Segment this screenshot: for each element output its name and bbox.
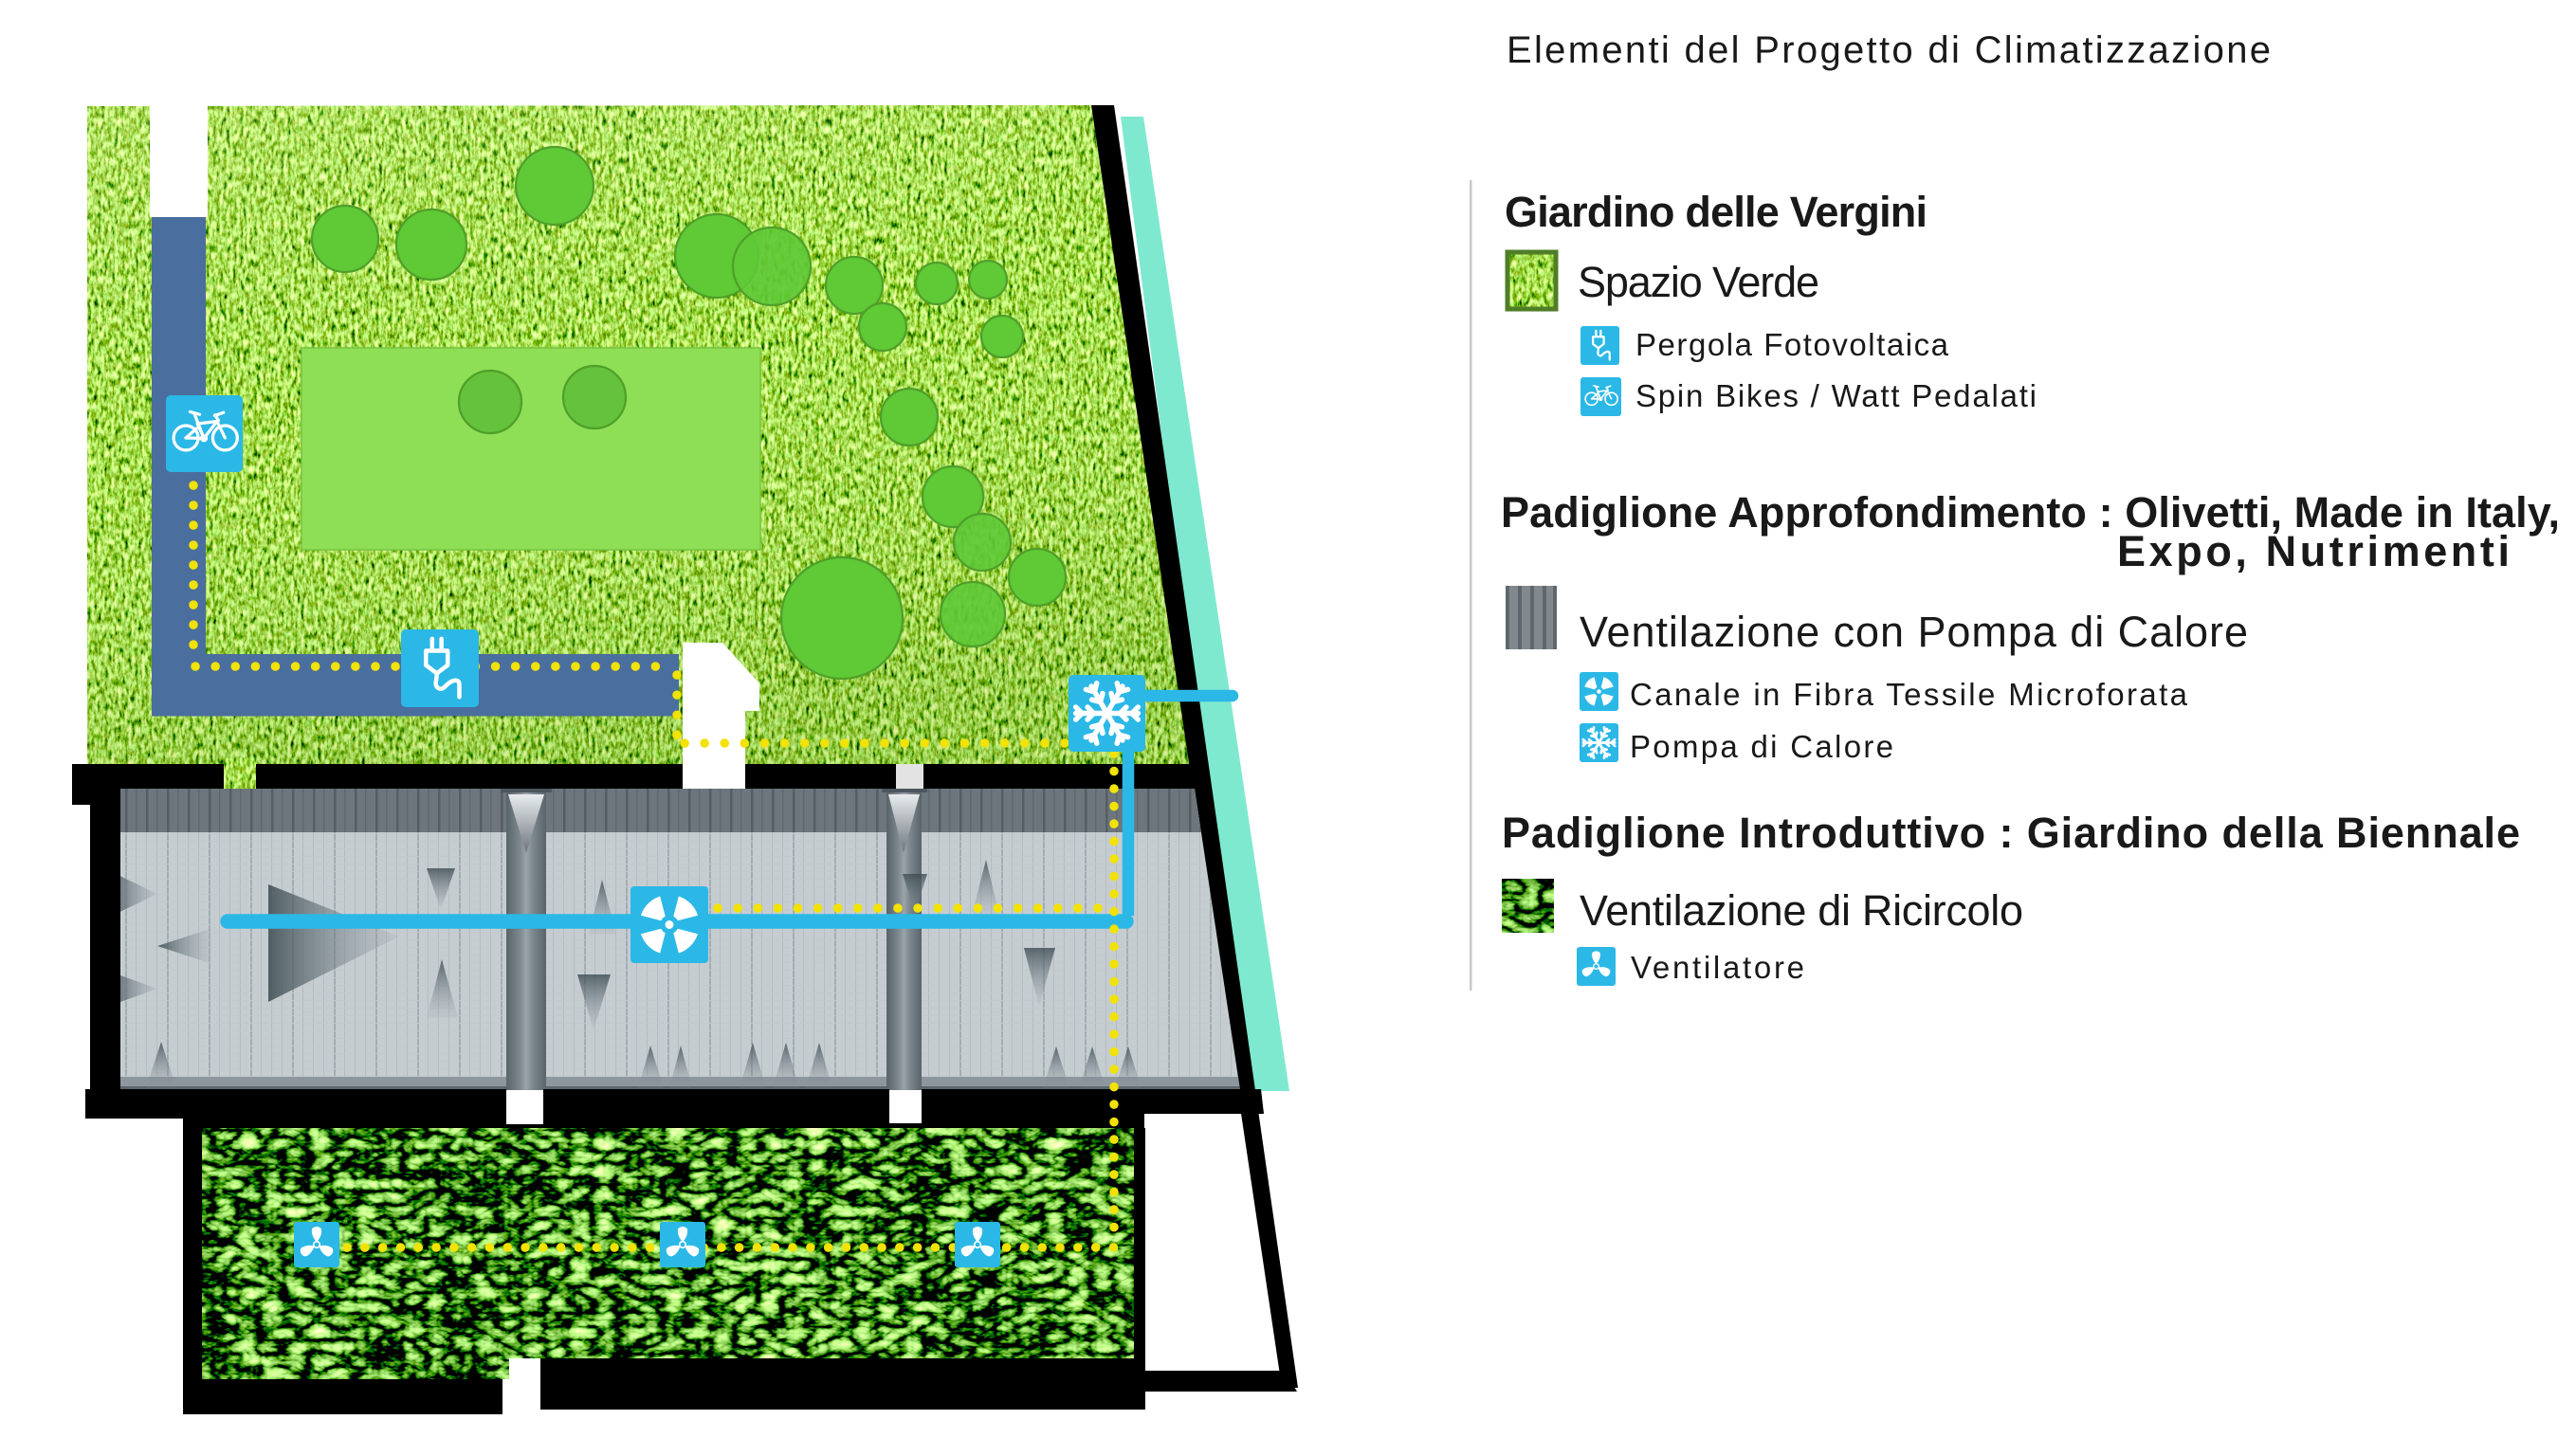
svg-text:Ventilazione di Ricircolo: Ventilazione di Ricircolo (1580, 886, 2023, 935)
svg-text:Expo, Nutrimenti: Expo, Nutrimenti (2117, 527, 2510, 575)
svg-text:Elementi del Progetto di Clima: Elementi del Progetto di Climatizzazione (1507, 29, 2271, 71)
svg-text:Giardino delle Vergini: Giardino delle Vergini (1505, 188, 1927, 236)
svg-text:Canale in Fibra Tessile Microf: Canale in Fibra Tessile Microforata (1630, 677, 2188, 712)
svg-text:Spin Bikes / Watt Pedalati: Spin Bikes / Watt Pedalati (1635, 378, 2037, 413)
svg-text:Ventilazione con Pompa di Calo: Ventilazione con Pompa di Calore (1580, 608, 2248, 656)
svg-text:Pergola Fotovoltaica: Pergola Fotovoltaica (1635, 327, 1949, 362)
svg-text:Padiglione Introduttivo : Giar: Padiglione Introduttivo : Giardino della… (1502, 809, 2520, 857)
svg-text:Spazio Verde: Spazio Verde (1578, 258, 1819, 306)
svg-text:Pompa di Calore: Pompa di Calore (1630, 729, 1893, 764)
svg-text:Ventilatore: Ventilatore (1631, 950, 1804, 985)
